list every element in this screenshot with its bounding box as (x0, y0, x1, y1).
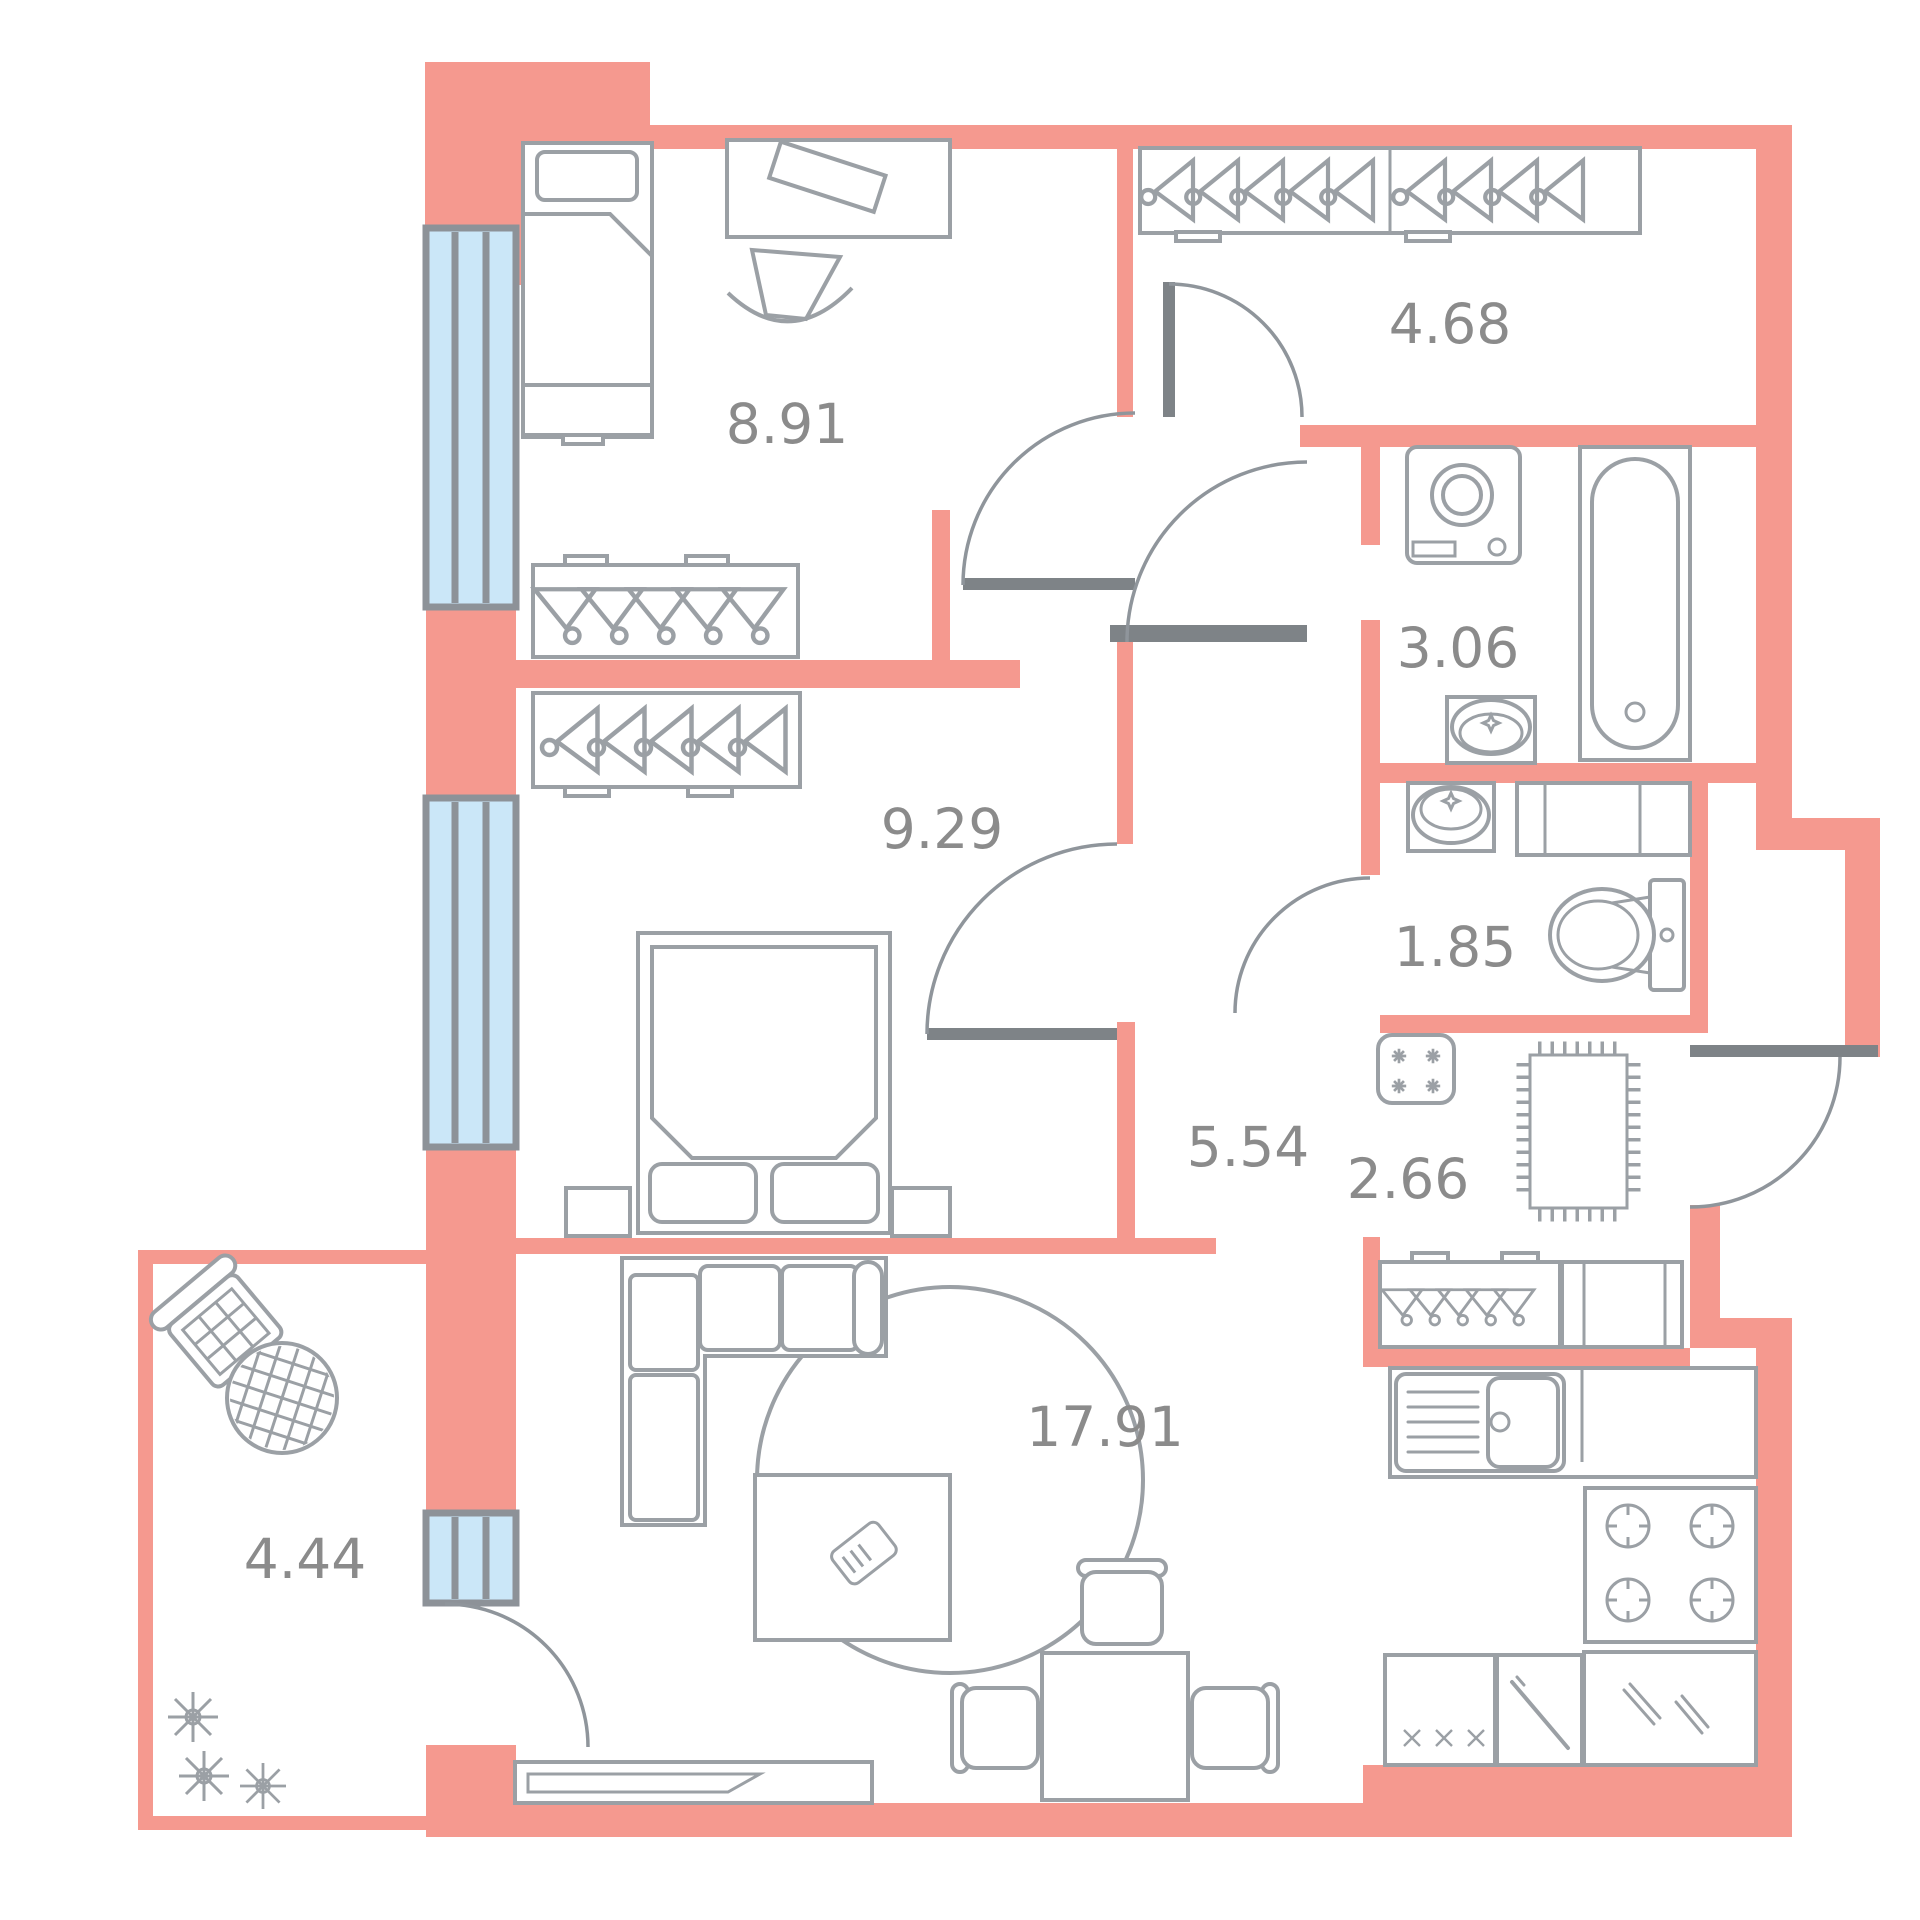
wall-bottom-kitchen (1363, 1765, 1792, 1837)
wall-balcony-bottom (138, 1816, 426, 1830)
plant-icon (240, 1763, 286, 1809)
wall-bedroom2-right-lower (1117, 1022, 1135, 1238)
door-arc-wardrobe-hall (1169, 284, 1302, 417)
wall-toilet-left (1361, 783, 1380, 875)
toilet-counter (1517, 783, 1690, 855)
wall-left-lower (426, 1147, 516, 1513)
dining-chair-right (1192, 1684, 1278, 1772)
room-label-bedroom1: 8.91 (726, 392, 848, 456)
door-arc-corridor (963, 413, 1135, 585)
door-leaf (927, 1028, 1117, 1040)
bathroom-sink (1447, 697, 1535, 763)
wardrobe-bedroom1 (533, 556, 798, 657)
dining-chair-top (1078, 1560, 1166, 1644)
wall-kitchen-top (1363, 1348, 1690, 1367)
stove (1585, 1488, 1756, 1642)
room-label-balcony: 4.44 (244, 1527, 366, 1591)
apartment-floor-plan: 8.91 4.68 3.06 9.29 1.85 5.54 2.66 17.91… (0, 0, 1920, 1920)
room-label-bedroom2: 9.29 (881, 797, 1003, 861)
bathtub (1580, 447, 1690, 760)
wall-hall-left (1117, 132, 1133, 417)
door-arc-toilet (1235, 878, 1370, 1013)
door-arc-entrance (1690, 1057, 1840, 1207)
desk (727, 140, 950, 237)
window-living-balcony (426, 1513, 516, 1603)
door-leaf (963, 578, 1135, 590)
wardrobe-hall-unit (1140, 148, 1640, 241)
nightstand (566, 1188, 630, 1236)
cabinet-utensil (1497, 1655, 1582, 1765)
room-wardrobe-hall (1140, 148, 1640, 241)
tv-stand (515, 1762, 872, 1803)
wall-right-lower (1756, 1348, 1792, 1837)
room-label-bathroom: 3.06 (1397, 616, 1519, 680)
wall-segment (425, 62, 516, 228)
window-bedroom2 (426, 798, 516, 1147)
wall-bedroom2-bottom (516, 1238, 1216, 1254)
washing-machine (1407, 447, 1520, 563)
door-leaf (1163, 282, 1175, 417)
room-label-entry: 2.66 (1347, 1147, 1469, 1211)
wall-corridor-entry-divider (1363, 1237, 1380, 1367)
wall-balcony-left (138, 1250, 153, 1830)
wall-vestibule-side (1845, 818, 1880, 1057)
wall-bath-toilet-divider (1361, 763, 1756, 783)
room-bedroom-2 (533, 693, 950, 1236)
door-arc-balcony (445, 1604, 588, 1747)
wall-bottom (426, 1803, 1363, 1837)
asterisk-panel (1378, 1035, 1454, 1103)
wall-entry-below-door (1690, 1205, 1720, 1318)
door-arc-bathroom (1127, 462, 1307, 642)
floor-plan-page: 8.91 4.68 3.06 9.29 1.85 5.54 2.66 17.91… (0, 0, 1920, 1920)
wardrobe-entry (1380, 1253, 1560, 1347)
dining-chair-left (952, 1684, 1038, 1772)
wall-bathroom-top (1300, 425, 1756, 447)
single-bed (523, 143, 652, 444)
cabinet-crosses (1385, 1655, 1495, 1765)
wall-balcony-top (138, 1250, 426, 1264)
wall-bedroom2-right-upper (1117, 628, 1133, 844)
wall-left-between-windows (426, 607, 516, 798)
window-bedroom1 (426, 228, 516, 607)
room-label-toilet: 1.85 (1394, 915, 1516, 979)
toilet-sink (1408, 783, 1494, 851)
wall-left-corner (426, 1745, 516, 1837)
room-label-corridor: 5.54 (1187, 1115, 1309, 1179)
wall-bathroom-left-a (1361, 447, 1380, 545)
entrance-door-lintel (1690, 1045, 1878, 1057)
doormat (1523, 1048, 1634, 1215)
nightstand (892, 1188, 950, 1236)
room-bathroom (1407, 447, 1690, 763)
double-bed (638, 933, 890, 1233)
door-stub (1110, 625, 1307, 642)
wall-toilet-bottom (1380, 1015, 1690, 1033)
wall-toilet-right (1690, 783, 1708, 1033)
toilet-bowl (1550, 880, 1684, 990)
room-label-wardrobe-hall: 4.68 (1389, 292, 1511, 356)
coffee-table (755, 1475, 950, 1640)
wall-entry-step (1690, 1318, 1792, 1348)
wardrobe-bedroom2 (533, 693, 800, 796)
plant-icon (179, 1751, 229, 1801)
wall-right-upper (1756, 149, 1792, 820)
plant-icon (168, 1692, 218, 1742)
room-label-living: 17.91 (1026, 1395, 1183, 1459)
kitchen-sink-counter (1390, 1368, 1756, 1477)
desk-chair (728, 250, 852, 321)
wall-bathroom-left-b (1361, 620, 1380, 763)
door-arc-bedroom2 (927, 844, 1117, 1034)
dining-table (1042, 1653, 1188, 1800)
cabinet-right (1584, 1652, 1756, 1765)
wall-bedroom1-bottom (516, 660, 1020, 688)
shoe-cabinet (1562, 1262, 1682, 1347)
